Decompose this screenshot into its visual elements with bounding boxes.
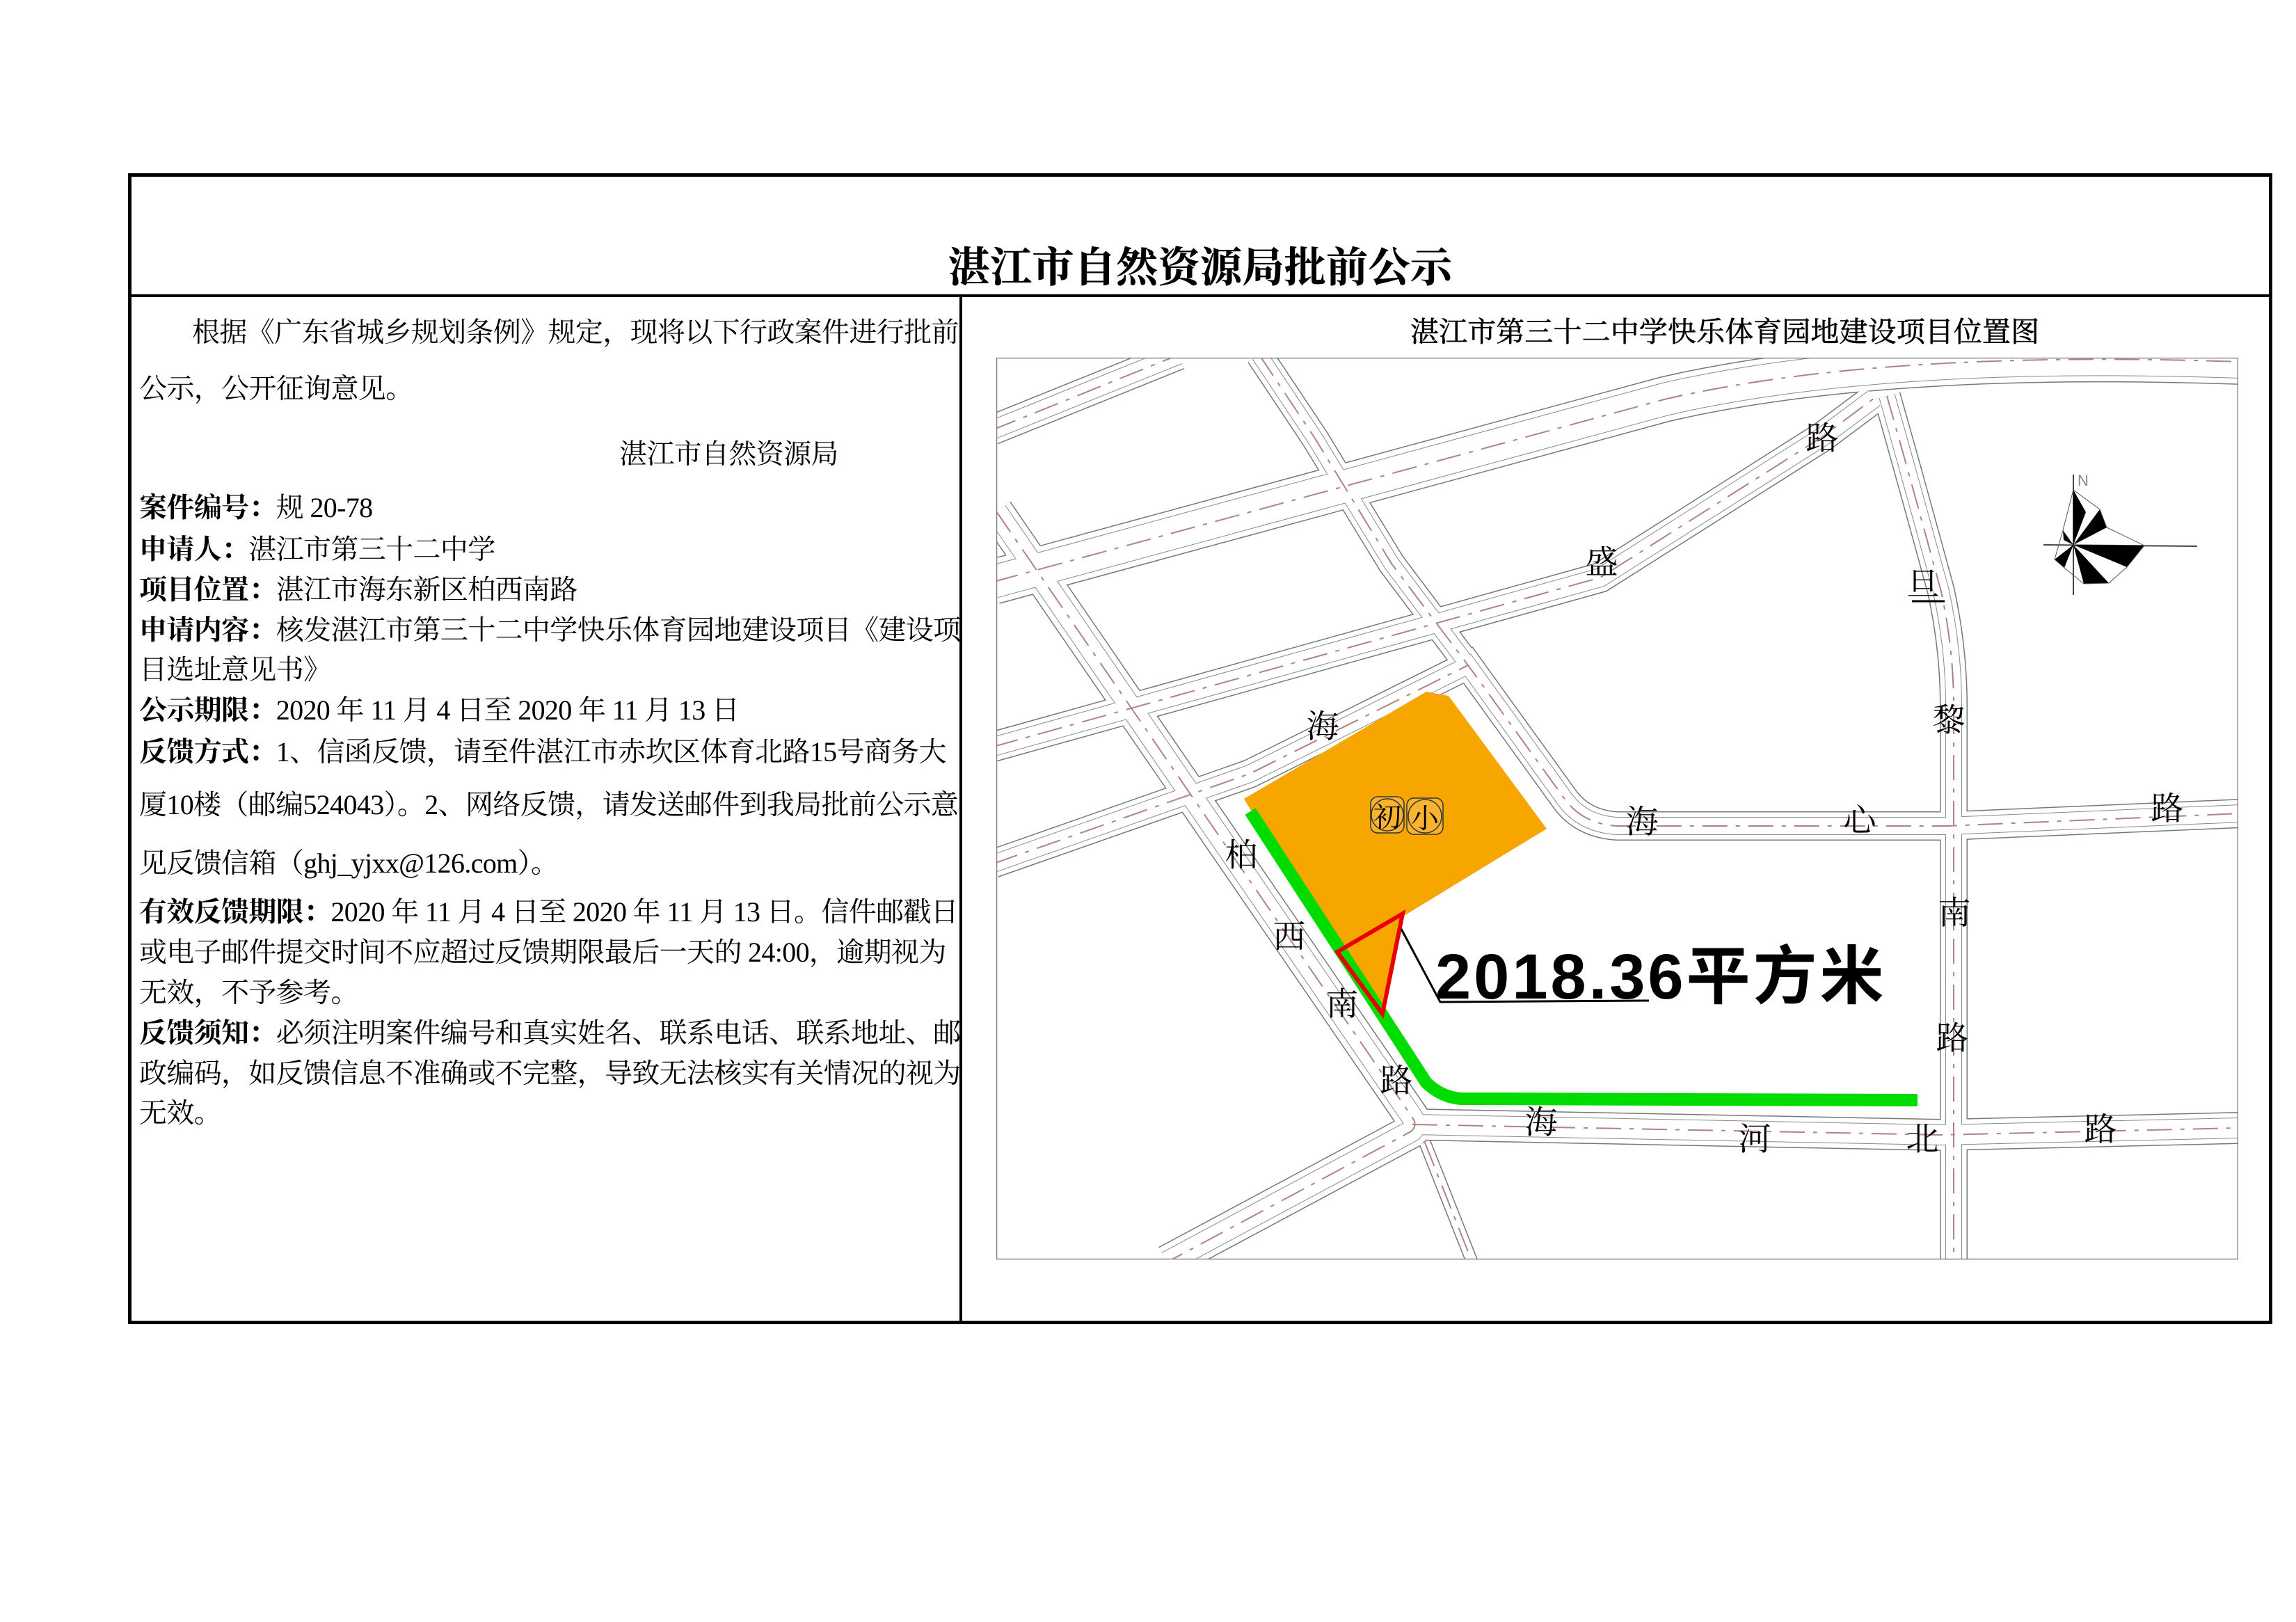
svg-text:N: N xyxy=(2078,472,2089,489)
svg-text:西: 西 xyxy=(1273,911,1306,957)
svg-text:路: 路 xyxy=(1380,1055,1413,1102)
svg-text:北: 北 xyxy=(1906,1113,1939,1160)
svg-text:南: 南 xyxy=(1938,887,1971,934)
svg-text:黎: 黎 xyxy=(1933,694,1966,741)
svg-text:河: 河 xyxy=(1739,1113,1771,1160)
svg-text:海: 海 xyxy=(1626,796,1659,843)
svg-text:初: 初 xyxy=(1373,795,1401,835)
svg-text:心: 心 xyxy=(1844,795,1878,841)
svg-text:2018.36平方米: 2018.36平方米 xyxy=(1435,925,1887,1017)
svg-text:路: 路 xyxy=(1936,1012,1969,1059)
svg-text:南: 南 xyxy=(1326,978,1359,1025)
svg-text:盛: 盛 xyxy=(1586,536,1618,583)
svg-text:海: 海 xyxy=(1525,1097,1558,1143)
svg-text:路: 路 xyxy=(2084,1104,2117,1150)
svg-text:海: 海 xyxy=(1307,701,1339,747)
svg-text:路: 路 xyxy=(1806,413,1839,459)
svg-text:旦: 旦 xyxy=(1907,559,1940,605)
svg-text:柏: 柏 xyxy=(1225,829,1258,876)
svg-text:路: 路 xyxy=(2151,783,2184,829)
svg-text:小: 小 xyxy=(1411,797,1440,836)
